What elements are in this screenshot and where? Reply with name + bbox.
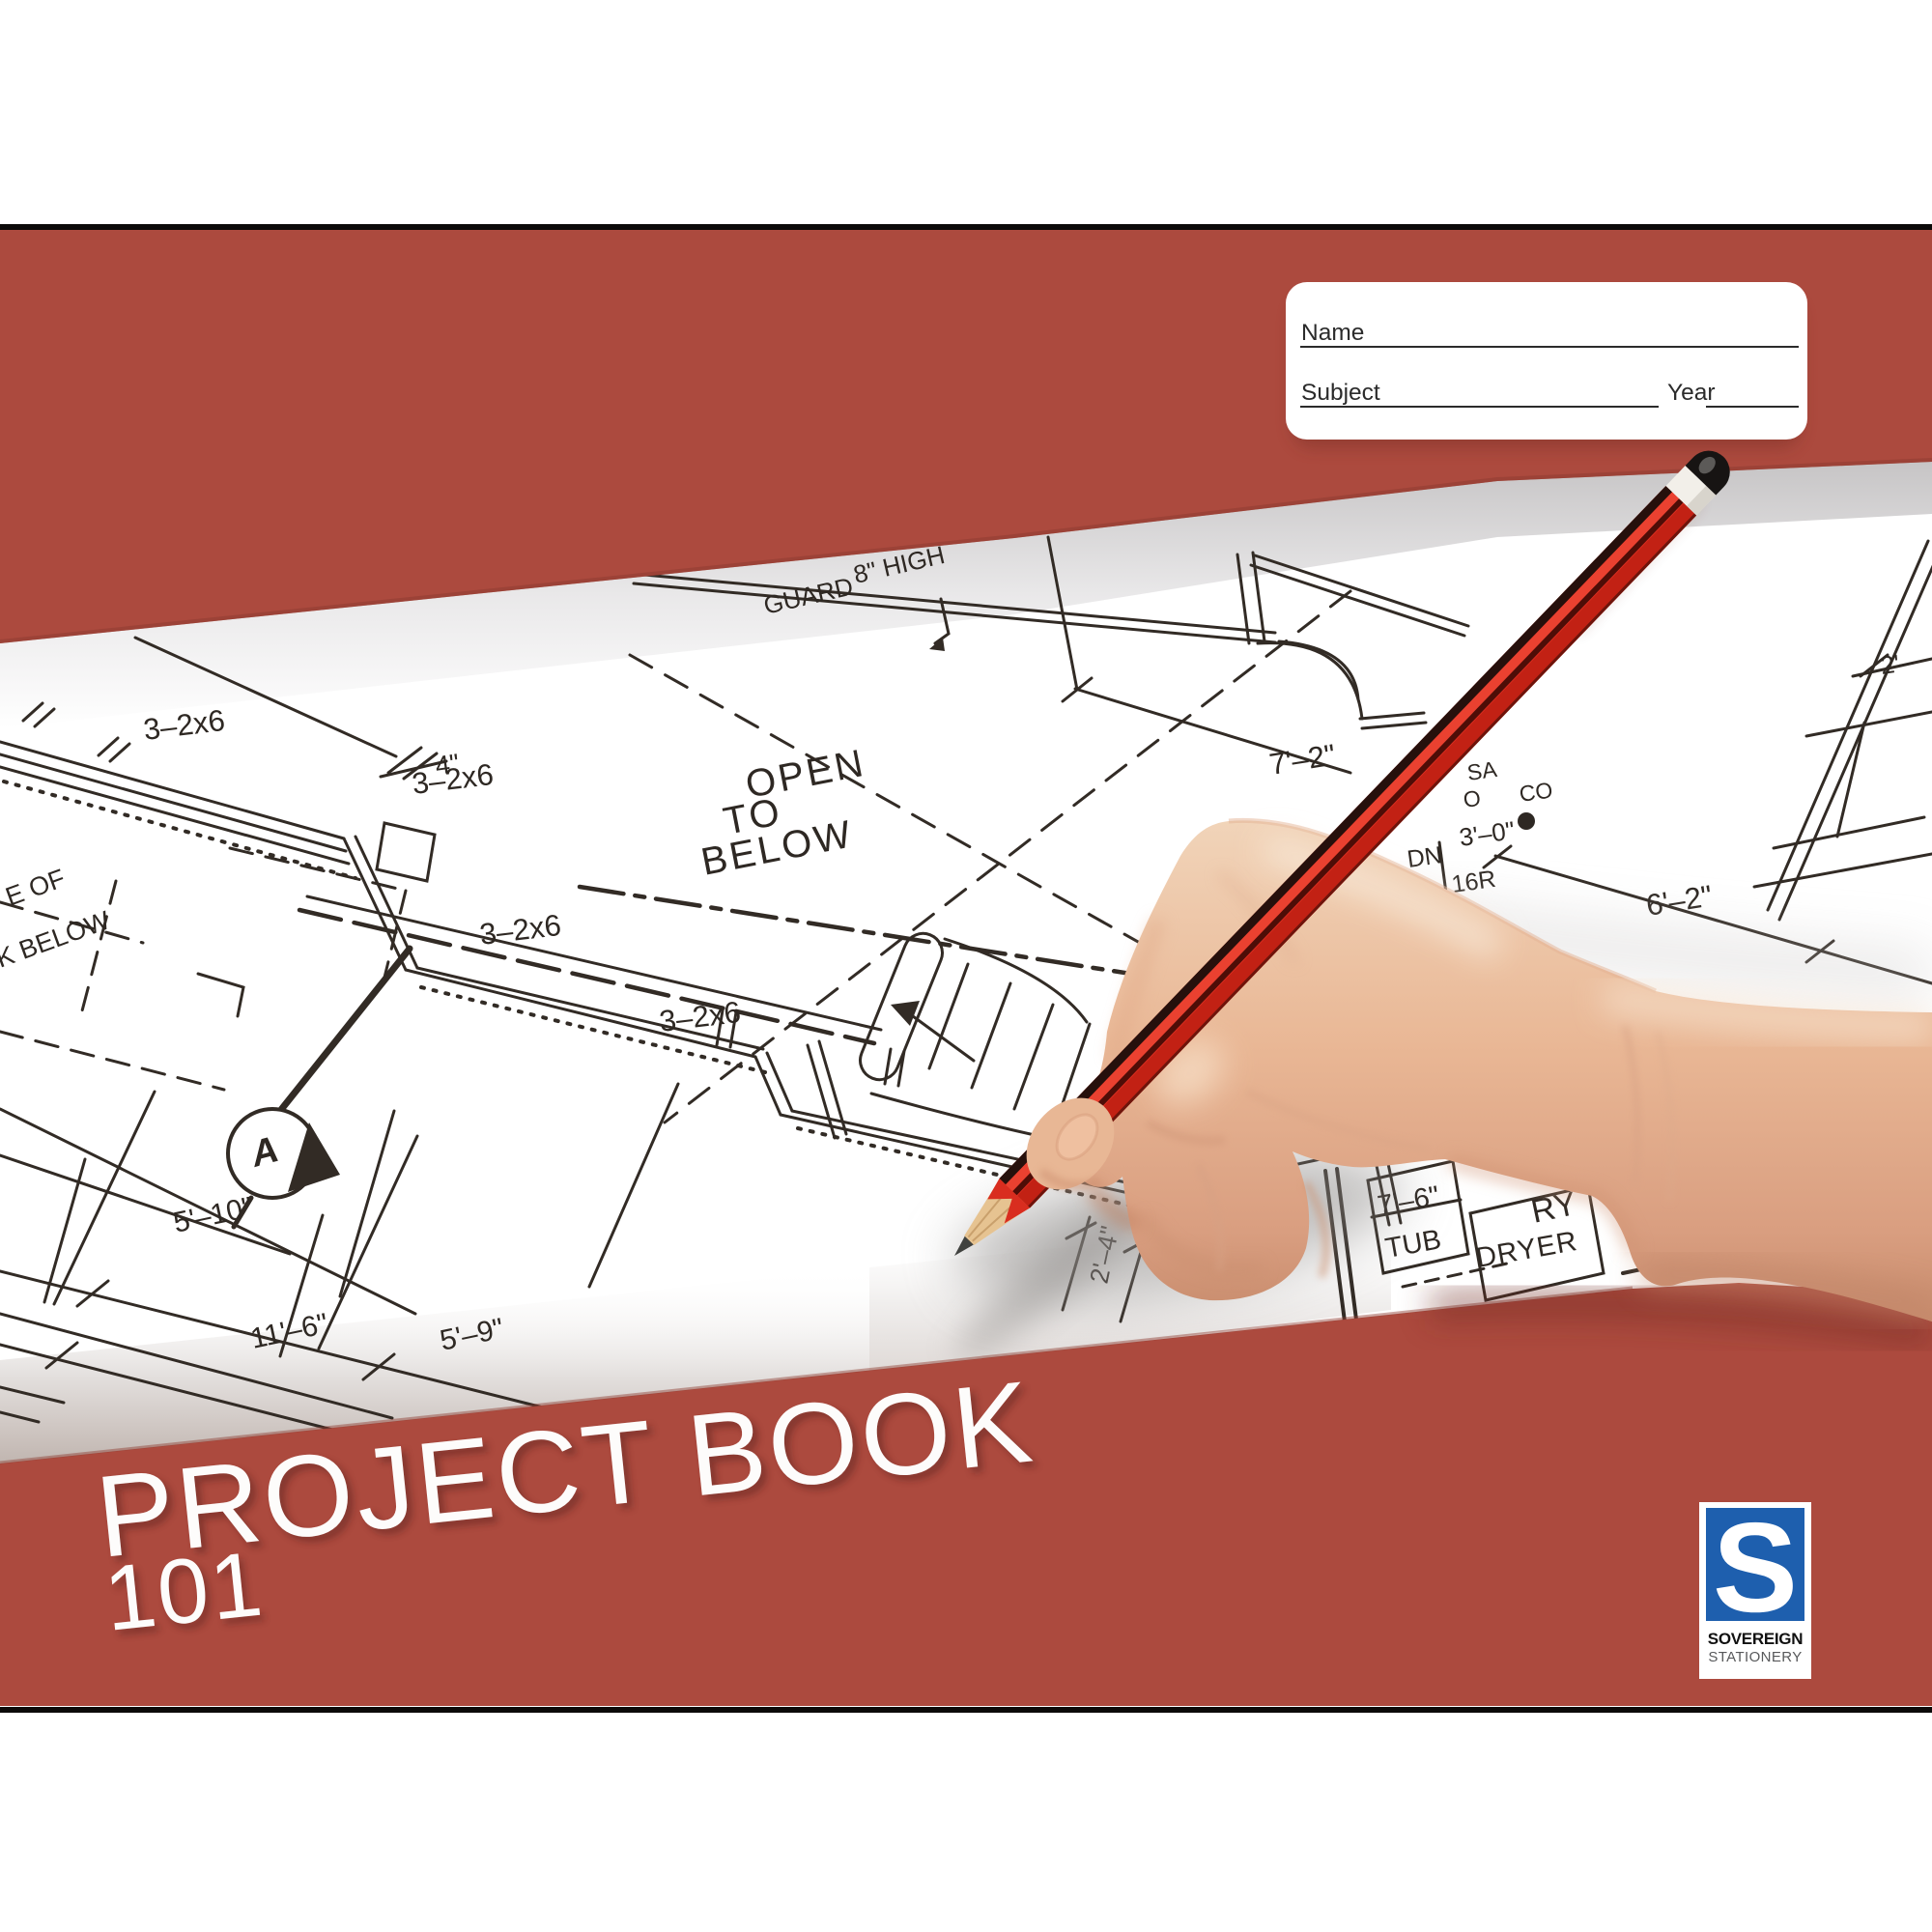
svg-text:SOVEREIGN: SOVEREIGN bbox=[1708, 1630, 1803, 1648]
svg-text:Name: Name bbox=[1301, 320, 1364, 346]
svg-text:O: O bbox=[1462, 785, 1482, 812]
svg-text:STATIONERY: STATIONERY bbox=[1708, 1649, 1802, 1665]
svg-text:101: 101 bbox=[99, 1533, 269, 1651]
svg-text:Year: Year bbox=[1667, 380, 1716, 406]
svg-text:Subject: Subject bbox=[1301, 380, 1380, 406]
svg-text:S: S bbox=[1713, 1496, 1798, 1638]
svg-text:DN: DN bbox=[1406, 841, 1444, 873]
svg-text:4": 4" bbox=[434, 749, 462, 781]
svg-text:SA: SA bbox=[1465, 756, 1499, 785]
svg-text:2'–: 2'– bbox=[1879, 646, 1916, 679]
svg-text:CO: CO bbox=[1518, 777, 1554, 807]
